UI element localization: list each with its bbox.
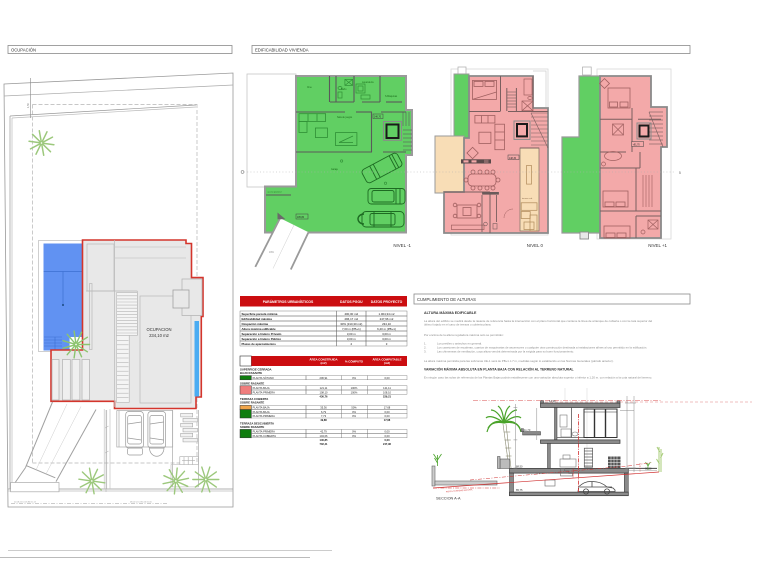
svg-text:SOBRE RASANTE: SOBRE RASANTE	[240, 381, 264, 385]
svg-text:Por encima de la altura regula: Por encima de la altura reguladora máxim…	[424, 333, 504, 337]
svg-text:(m2): (m2)	[320, 361, 326, 365]
svg-text:Superficie parcela mínima: Superficie parcela mínima	[242, 312, 278, 316]
svg-text:Plazas de aparcamientos: Plazas de aparcamientos	[242, 342, 277, 346]
svg-text:11,70: 11,70	[524, 428, 531, 432]
svg-text:NIVEL -1: NIVEL -1	[393, 243, 411, 248]
svg-text:(m2): (m2)	[384, 361, 390, 365]
svg-text:1,50: 1,50	[27, 103, 30, 108]
svg-text:En ningún caso las solas de re: En ningún caso las solas de referencia d…	[424, 376, 652, 380]
svg-text:146,70: 146,70	[374, 117, 382, 119]
svg-text:104,06: 104,06	[320, 434, 328, 438]
svg-text:0,00: 0,00	[384, 376, 390, 380]
svg-text:234,10 m2: 234,10 m2	[149, 333, 169, 338]
svg-text:NIVEL +1: NIVEL +1	[648, 243, 667, 248]
svg-text:VARIACIÓN MÁXIMA ABSOLUTA EN P: VARIACIÓN MÁXIMA ABSOLUTA EN PLANTA BAJA…	[424, 367, 574, 372]
svg-text:229,21: 229,21	[383, 394, 391, 398]
svg-text:234,10: 234,10	[382, 322, 391, 326]
svg-text:0,00: 0,00	[384, 434, 390, 438]
svg-text:S.Máquinas: S.Máquinas	[385, 96, 398, 98]
svg-text:+91,70: +91,70	[633, 144, 641, 146]
svg-text:100%: 100%	[351, 386, 358, 390]
svg-text:08.02 52.13 84.16 00.00: 08.02 52.13 84.16 00.00	[130, 502, 153, 504]
svg-text:3,00 m: 3,00 m	[347, 332, 356, 336]
svg-text:terraza cub.: terraza cub.	[522, 197, 533, 200]
svg-text:3,00 m: 3,00 m	[347, 337, 356, 341]
svg-text:Sala de juegos: Sala de juegos	[337, 117, 353, 119]
svg-text:0,00: 0,00	[384, 438, 390, 442]
svg-text:7,73: 7,73	[321, 414, 327, 418]
svg-text:PLANTA PRIMERA: PLANTA PRIMERA	[253, 430, 276, 434]
svg-text:121,11: 121,11	[383, 386, 391, 390]
svg-text:PLANTA CUBIERTA: PLANTA CUBIERTA	[253, 434, 277, 438]
svg-text:Edificabilidad máxima: Edificabilidad máxima	[242, 317, 273, 321]
svg-text:121,11: 121,11	[320, 386, 328, 390]
svg-text:50%: 50%	[351, 406, 357, 410]
svg-text:148,30: 148,30	[509, 158, 517, 160]
svg-text:Separación a lindero Público: Separación a lindero Público	[242, 337, 282, 341]
svg-text:DATOS PROYECTO: DATOS PROYECTO	[371, 300, 403, 304]
svg-text:PLANTA BAJA: PLANTA BAJA	[253, 386, 270, 390]
svg-text:30% (310,30 m2): 30% (310,30 m2)	[340, 322, 362, 326]
svg-text:Garaje: Garaje	[331, 168, 339, 171]
svg-text:OCUPACION: OCUPACION	[146, 327, 171, 332]
svg-text:108,10: 108,10	[383, 390, 391, 394]
svg-text:105,80: 105,80	[297, 217, 305, 219]
svg-text:PLANTA PRIMERA: PLANTA PRIMERA	[253, 414, 276, 418]
svg-text:OCUPACIÓN: OCUPACIÓN	[11, 48, 36, 53]
svg-text:7,00 m (PB+1): 7,00 m (PB+1)	[342, 327, 361, 331]
svg-text:3.: 3.	[424, 350, 427, 354]
svg-text:PARÁMETROS URBANÍSTICOS: PARÁMETROS URBANÍSTICOS	[263, 299, 314, 304]
svg-text:Lavandería: Lavandería	[362, 81, 374, 84]
svg-text:SOBRE RASANTE: SOBRE RASANTE	[240, 400, 264, 404]
svg-text:NIVEL 0: NIVEL 0	[527, 243, 544, 248]
svg-text:42,79: 42,79	[320, 430, 327, 434]
svg-text:247,96: 247,96	[383, 442, 391, 446]
svg-text:BAJO RASANTE: BAJO RASANTE	[240, 371, 262, 375]
svg-text:88,00: 88,00	[645, 467, 652, 471]
svg-text:Cine: Cine	[307, 87, 312, 89]
svg-text:% CÓMPUTO: % CÓMPUTO	[345, 358, 364, 363]
svg-text:PLANTA PRIMERA: PLANTA PRIMERA	[253, 390, 276, 394]
svg-text:5: 5	[679, 171, 681, 175]
svg-text:PLANTA BAJA: PLANTA BAJA	[253, 410, 270, 414]
svg-text:0,00: 0,00	[384, 430, 390, 434]
svg-text:SOBRE RASANTE: SOBRE RASANTE	[240, 425, 264, 429]
svg-text:acceso peatonal: acceso peatonal	[268, 191, 282, 194]
svg-text:108,10: 108,10	[320, 390, 328, 394]
svg-text:146,85: 146,85	[320, 438, 328, 442]
svg-text:Ocupación máxima: Ocupación máxima	[242, 322, 269, 326]
svg-text:296,17 m2: 296,17 m2	[344, 317, 358, 321]
svg-text:247,96 m2: 247,96 m2	[380, 317, 394, 321]
svg-text:PLANTA BAJA: PLANTA BAJA	[253, 406, 270, 410]
svg-text:400,00 m2: 400,00 m2	[344, 312, 358, 316]
svg-text:Separación a lindero Privado: Separación a lindero Privado	[242, 332, 282, 336]
svg-text:Baño: Baño	[341, 88, 347, 91]
svg-text:436,76: 436,76	[320, 394, 328, 398]
svg-text:0,00: 0,00	[384, 410, 390, 414]
svg-text:DATOS PGOU: DATOS PGOU	[340, 300, 363, 304]
svg-text:3,00 m: 3,00 m	[382, 332, 391, 336]
svg-text:SECCION A-A: SECCION A-A	[436, 497, 461, 501]
svg-text:14,30: 14,30	[549, 399, 556, 403]
svg-text:206,91: 206,91	[320, 376, 328, 380]
svg-text:6,40 m (PB+1): 6,40 m (PB+1)	[377, 327, 396, 331]
svg-text:0,00: 0,00	[384, 414, 390, 418]
svg-text:100%: 100%	[351, 390, 358, 394]
svg-text:17,68: 17,68	[384, 406, 391, 410]
svg-text:85,75: 85,75	[516, 488, 523, 492]
svg-text:COTA REF.: COTA REF.	[572, 467, 575, 478]
svg-text:EDIFICABILIDAD VIVIENDA: EDIFICABILIDAD VIVIENDA	[255, 48, 309, 53]
svg-text:ALTURA MÁXIMA EDIFICABLE: ALTURA MÁXIMA EDIFICABLE	[424, 310, 477, 315]
svg-text:Las chimeneas de ventilación,: Las chimeneas de ventilación, cuya altur…	[437, 350, 574, 354]
svg-text:1.004,34 m2: 1.004,34 m2	[378, 312, 394, 316]
svg-text:88,50: 88,50	[516, 464, 523, 468]
svg-text:35,36: 35,36	[320, 406, 327, 410]
svg-text:3,00 m: 3,00 m	[382, 337, 391, 341]
svg-text:Altura máxima edificable: Altura máxima edificable	[242, 327, 276, 331]
svg-text:17,68: 17,68	[384, 418, 391, 422]
svg-text:La altura máxima permitida par: La altura máxima permitida para las subz…	[424, 359, 614, 363]
svg-text:49,88: 49,88	[320, 418, 327, 422]
svg-text:último forjado en el caso de t: último forjado en el caso de terraza o c…	[424, 323, 492, 327]
svg-text:22.08 24.51 26.84 00.13: 22.08 24.51 26.84 00.13	[14, 502, 37, 504]
svg-text:6,79: 6,79	[321, 410, 327, 414]
svg-text:CUMPLIMIENTO DE ALTURAS: CUMPLIMIENTO DE ALTURAS	[417, 297, 476, 302]
svg-text:702,41: 702,41	[320, 442, 328, 446]
